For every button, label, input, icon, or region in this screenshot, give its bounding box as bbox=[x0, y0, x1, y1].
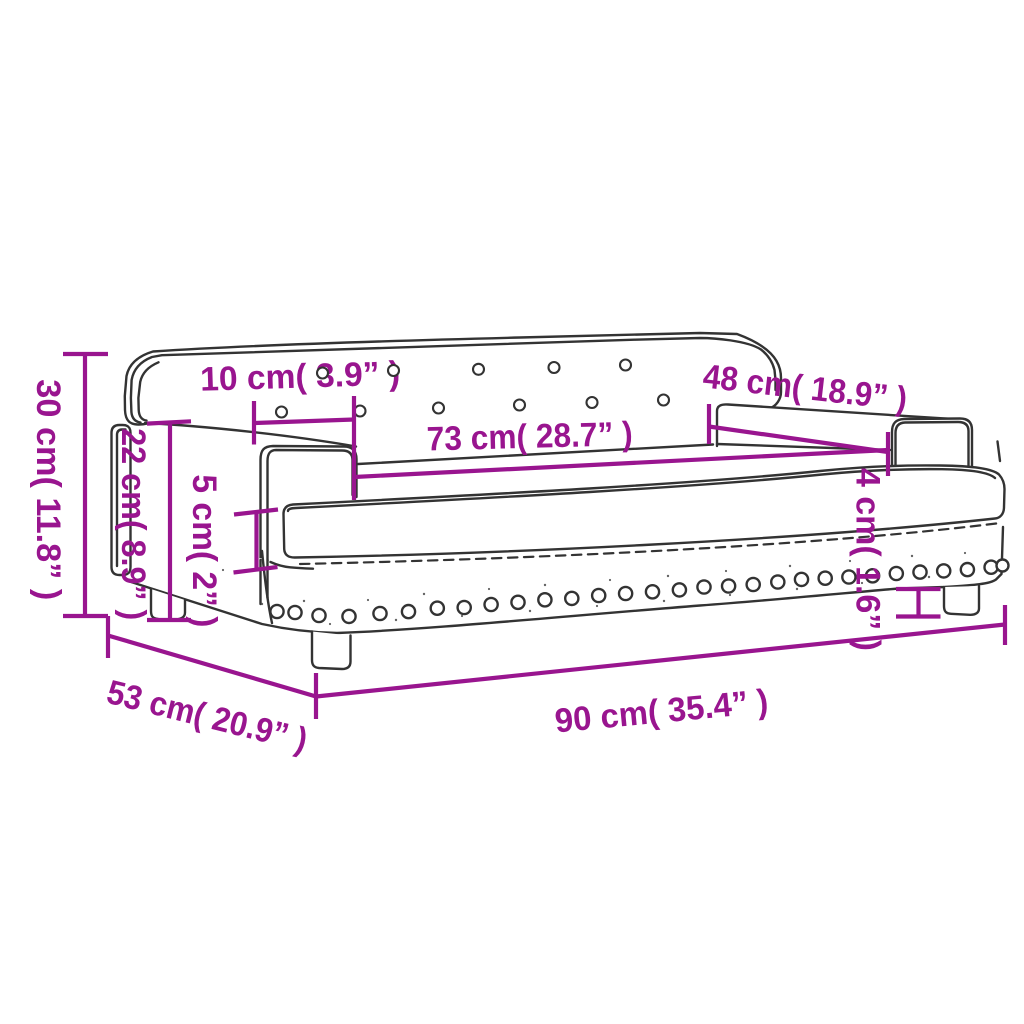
svg-text:73 cm( 28.7” ): 73 cm( 28.7” ) bbox=[426, 415, 633, 458]
svg-text:22 cm( 8.9” ): 22 cm( 8.9” ) bbox=[114, 428, 152, 620]
svg-text:4 cm( 1.6” ): 4 cm( 1.6” ) bbox=[849, 468, 887, 651]
svg-text:5 cm( 2” ): 5 cm( 2” ) bbox=[185, 474, 223, 627]
svg-text:10 cm( 3.9” ): 10 cm( 3.9” ) bbox=[200, 355, 401, 399]
svg-text:30 cm( 11.8” ): 30 cm( 11.8” ) bbox=[29, 379, 67, 600]
